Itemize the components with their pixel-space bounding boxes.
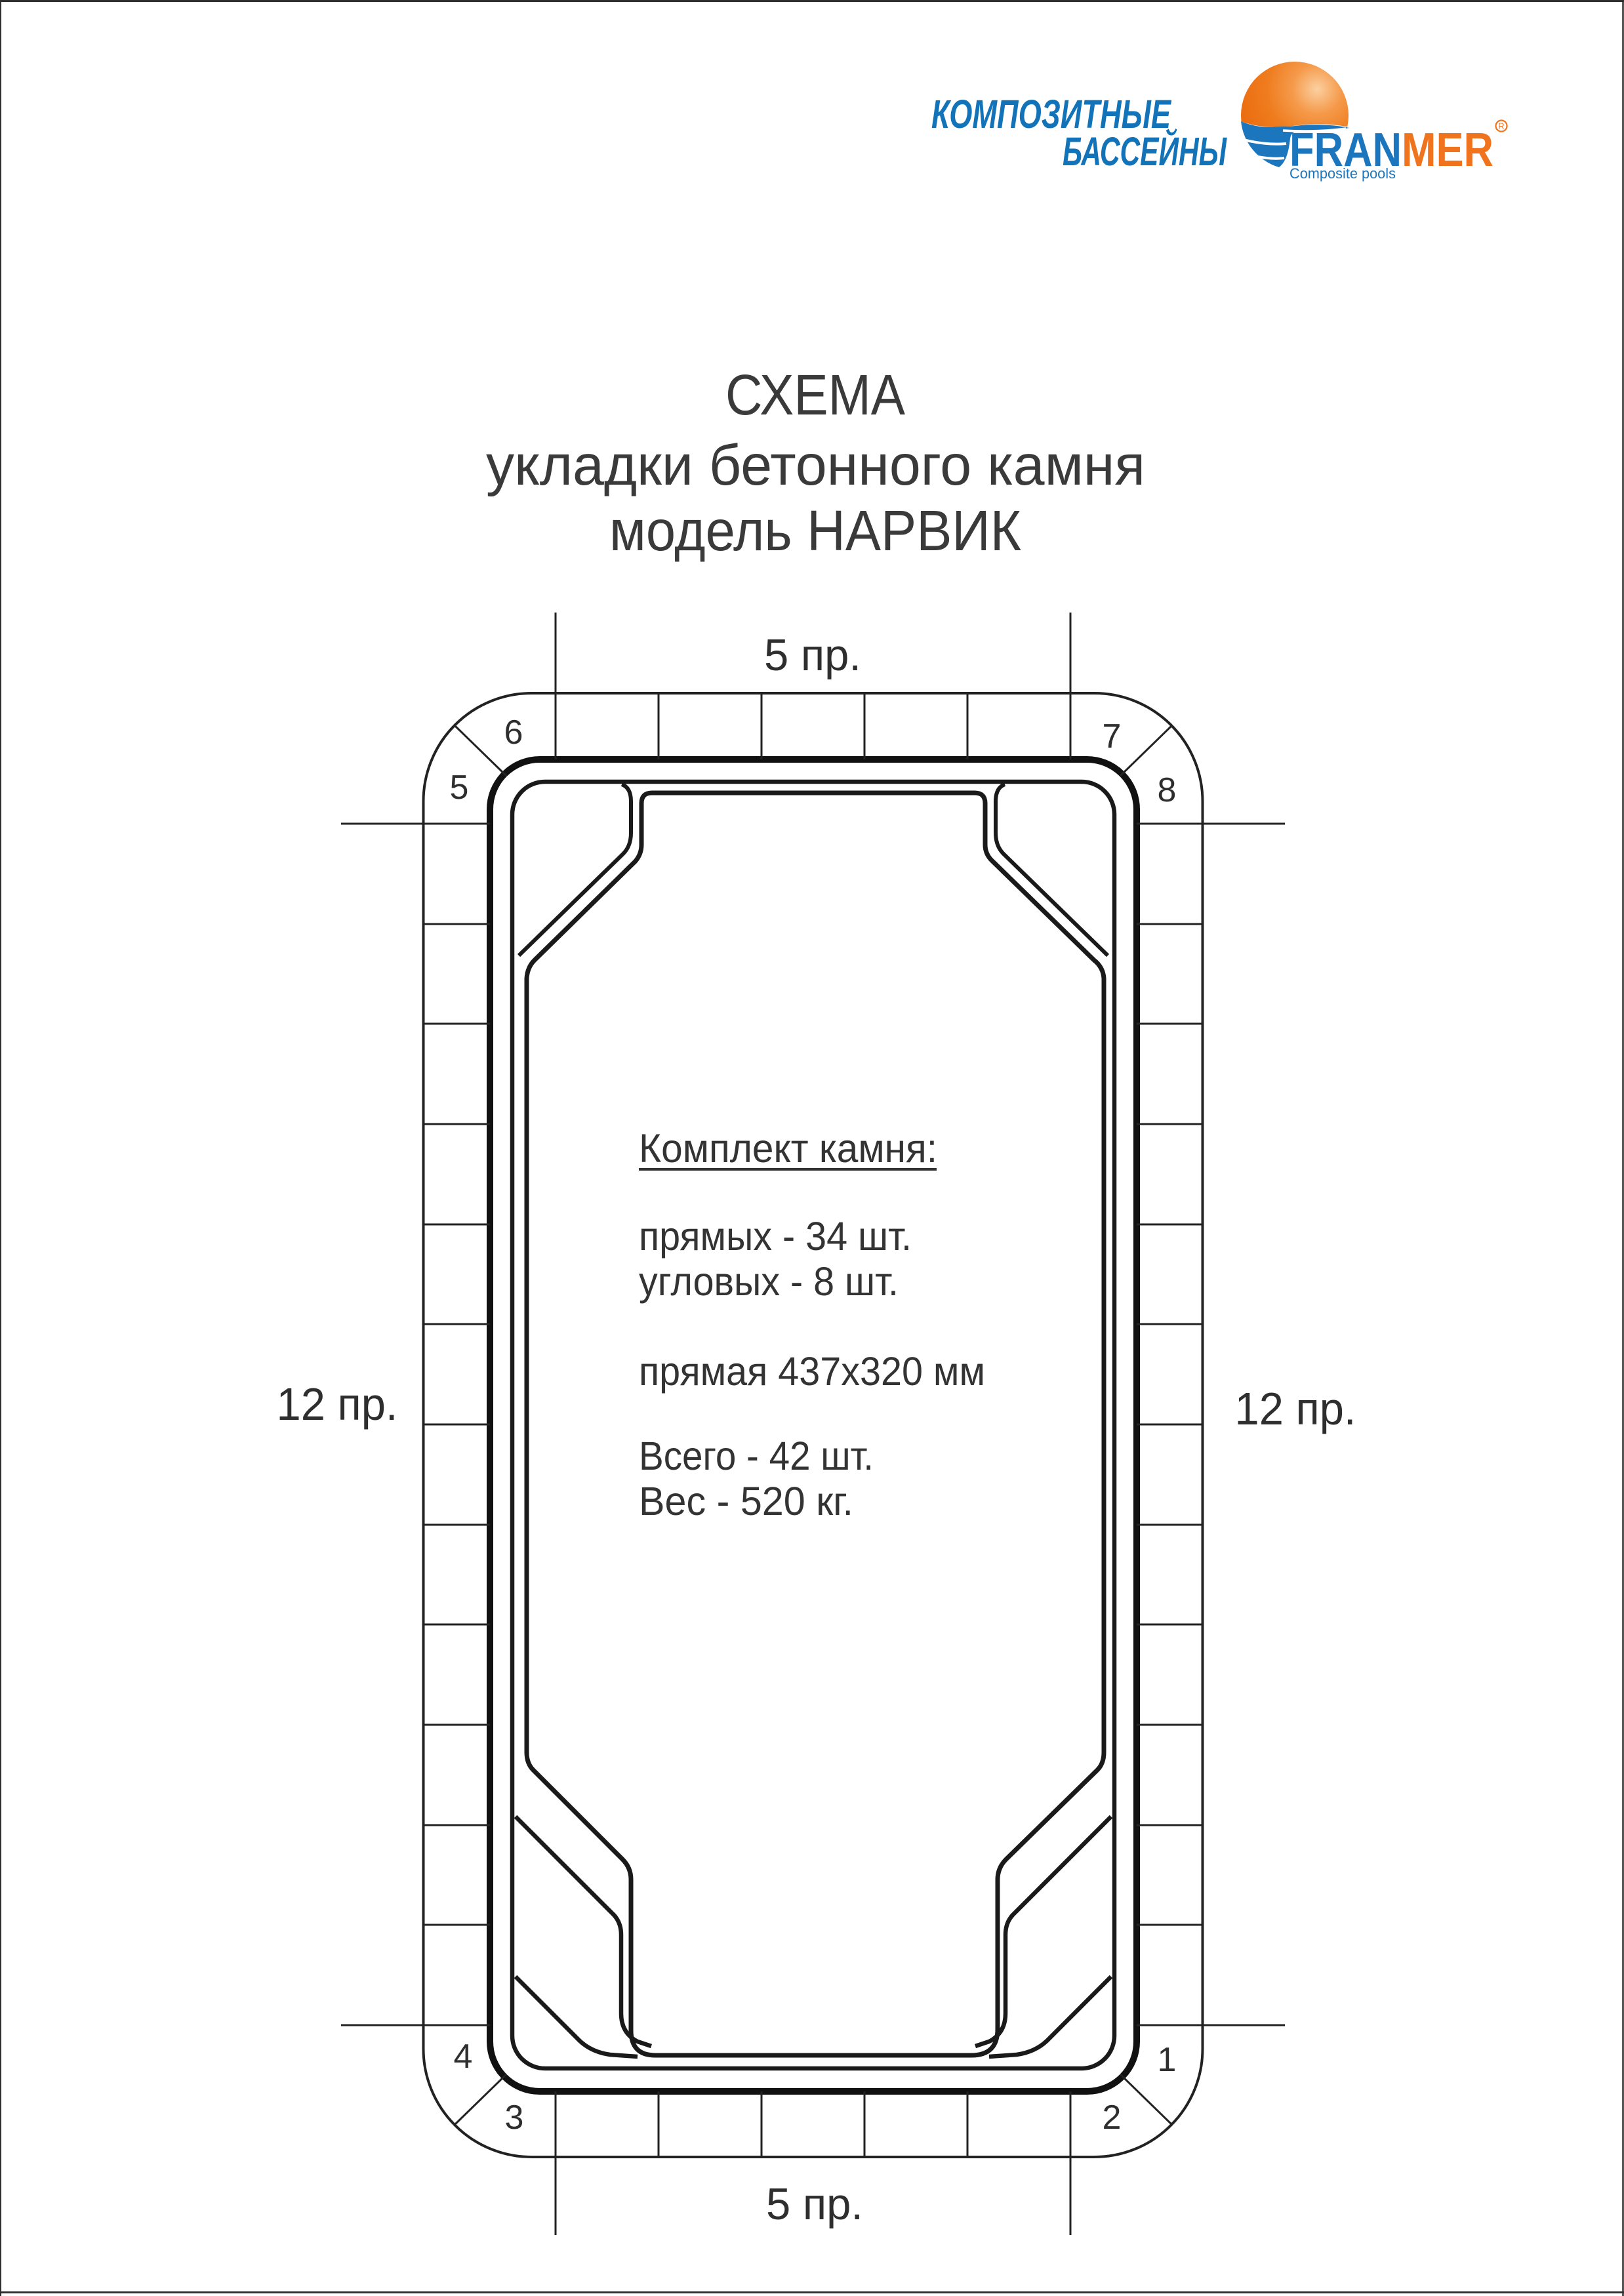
- svg-text:Комплект камня:: Комплект камня:: [639, 1126, 937, 1171]
- svg-text:модель НАРВИК: модель НАРВИК: [609, 499, 1021, 563]
- svg-text:прямых - 34 шт.: прямых - 34 шт.: [639, 1214, 912, 1259]
- svg-text:укладки бетонного камня: укладки бетонного камня: [486, 433, 1145, 497]
- svg-text:прямая 437х320 мм: прямая 437х320 мм: [639, 1349, 985, 1394]
- svg-text:Composite pools: Composite pools: [1289, 165, 1396, 182]
- svg-text:8: 8: [1158, 771, 1177, 809]
- svg-text:1: 1: [1158, 2041, 1177, 2079]
- svg-text:3: 3: [505, 2099, 524, 2137]
- svg-text:2: 2: [1103, 2099, 1122, 2137]
- svg-text:Всего - 42 шт.: Всего - 42 шт.: [639, 1434, 874, 1478]
- svg-text:7: 7: [1103, 717, 1122, 755]
- svg-text:12 пр.: 12 пр.: [277, 1379, 398, 1430]
- svg-text:Вес - 520 кг.: Вес - 520 кг.: [639, 1479, 853, 1523]
- svg-text:MER: MER: [1402, 124, 1493, 176]
- svg-text:5 пр.: 5 пр.: [766, 2179, 863, 2229]
- svg-text:БАССЕЙНЫ: БАССЕЙНЫ: [1063, 128, 1227, 174]
- svg-text:6: 6: [504, 714, 523, 752]
- svg-text:СХЕМА: СХЕМА: [725, 363, 905, 427]
- svg-text:5 пр.: 5 пр.: [764, 630, 861, 680]
- svg-text:5: 5: [450, 769, 469, 807]
- svg-text:R: R: [1498, 121, 1504, 131]
- svg-text:угловых - 8 шт.: угловых - 8 шт.: [639, 1259, 899, 1304]
- svg-text:4: 4: [454, 2038, 473, 2076]
- svg-text:12 пр.: 12 пр.: [1235, 1383, 1356, 1434]
